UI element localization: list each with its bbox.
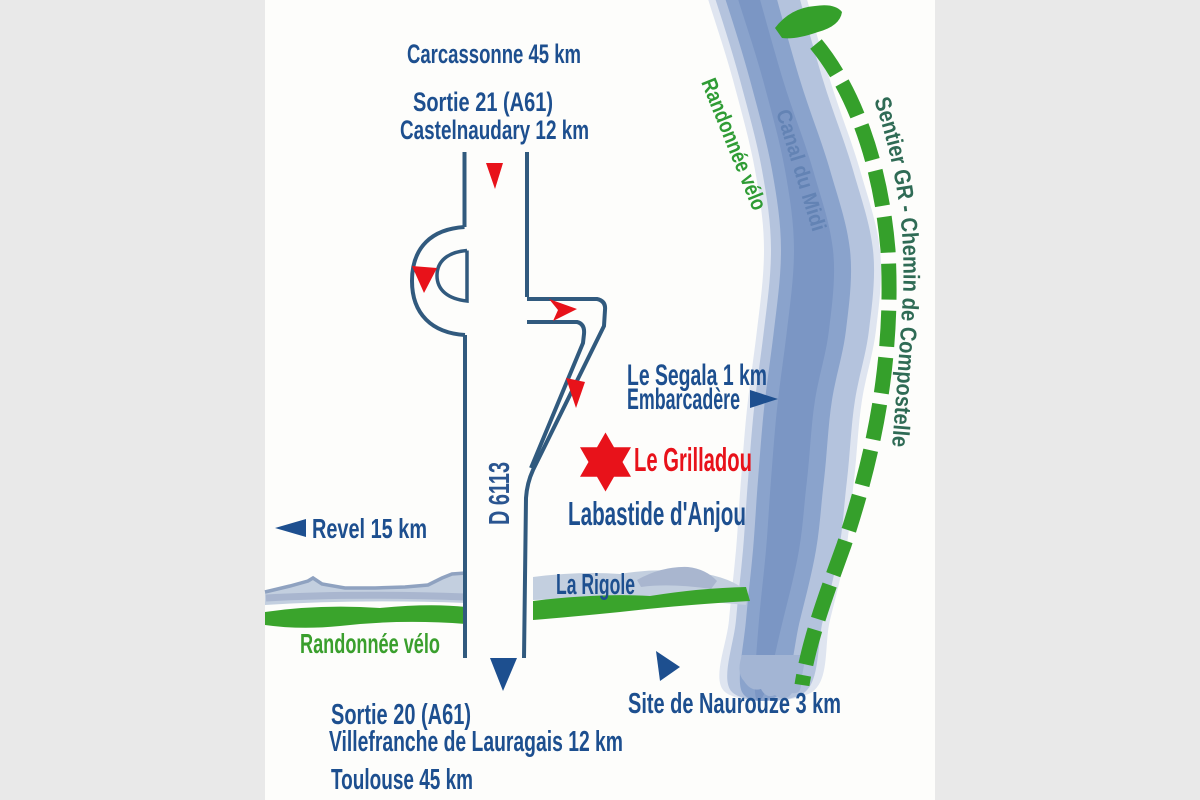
- svg-text:Randonnée vélo: Randonnée vélo: [300, 628, 440, 659]
- svg-text:Sortie 21 (A61): Sortie 21 (A61): [413, 87, 553, 117]
- svg-text:Le Grilladou: Le Grilladou: [634, 441, 752, 478]
- svg-text:D 6113: D 6113: [484, 462, 516, 525]
- svg-text:Revel 15 km: Revel 15 km: [312, 513, 427, 544]
- svg-text:Toulouse 45 km: Toulouse 45 km: [331, 764, 473, 796]
- svg-text:Castelnaudary 12 km: Castelnaudary 12 km: [400, 115, 589, 145]
- svg-text:Carcassonne 45 km: Carcassonne 45 km: [407, 39, 581, 69]
- svg-text:Site de Naurouze 3 km: Site de Naurouze 3 km: [628, 688, 841, 720]
- svg-text:Labastide d'Anjou: Labastide d'Anjou: [568, 495, 746, 532]
- svg-text:Villefranche de Lauragais 12 k: Villefranche de Lauragais 12 km: [329, 726, 623, 758]
- svg-text:La Rigole: La Rigole: [556, 569, 635, 601]
- svg-text:Embarcadère: Embarcadère: [627, 383, 740, 416]
